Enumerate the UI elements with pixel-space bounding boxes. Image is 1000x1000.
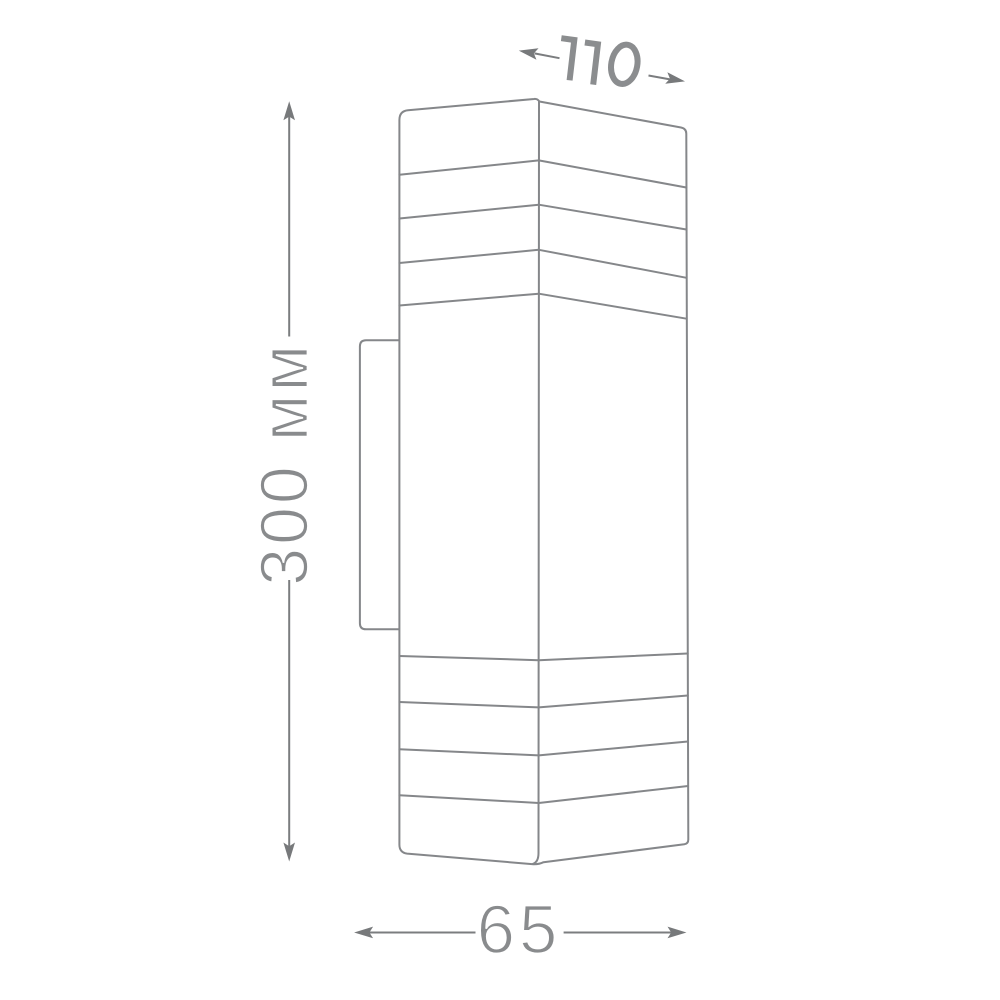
svg-text:65: 65	[477, 891, 562, 968]
svg-text:300 мм: 300 мм	[247, 342, 323, 586]
